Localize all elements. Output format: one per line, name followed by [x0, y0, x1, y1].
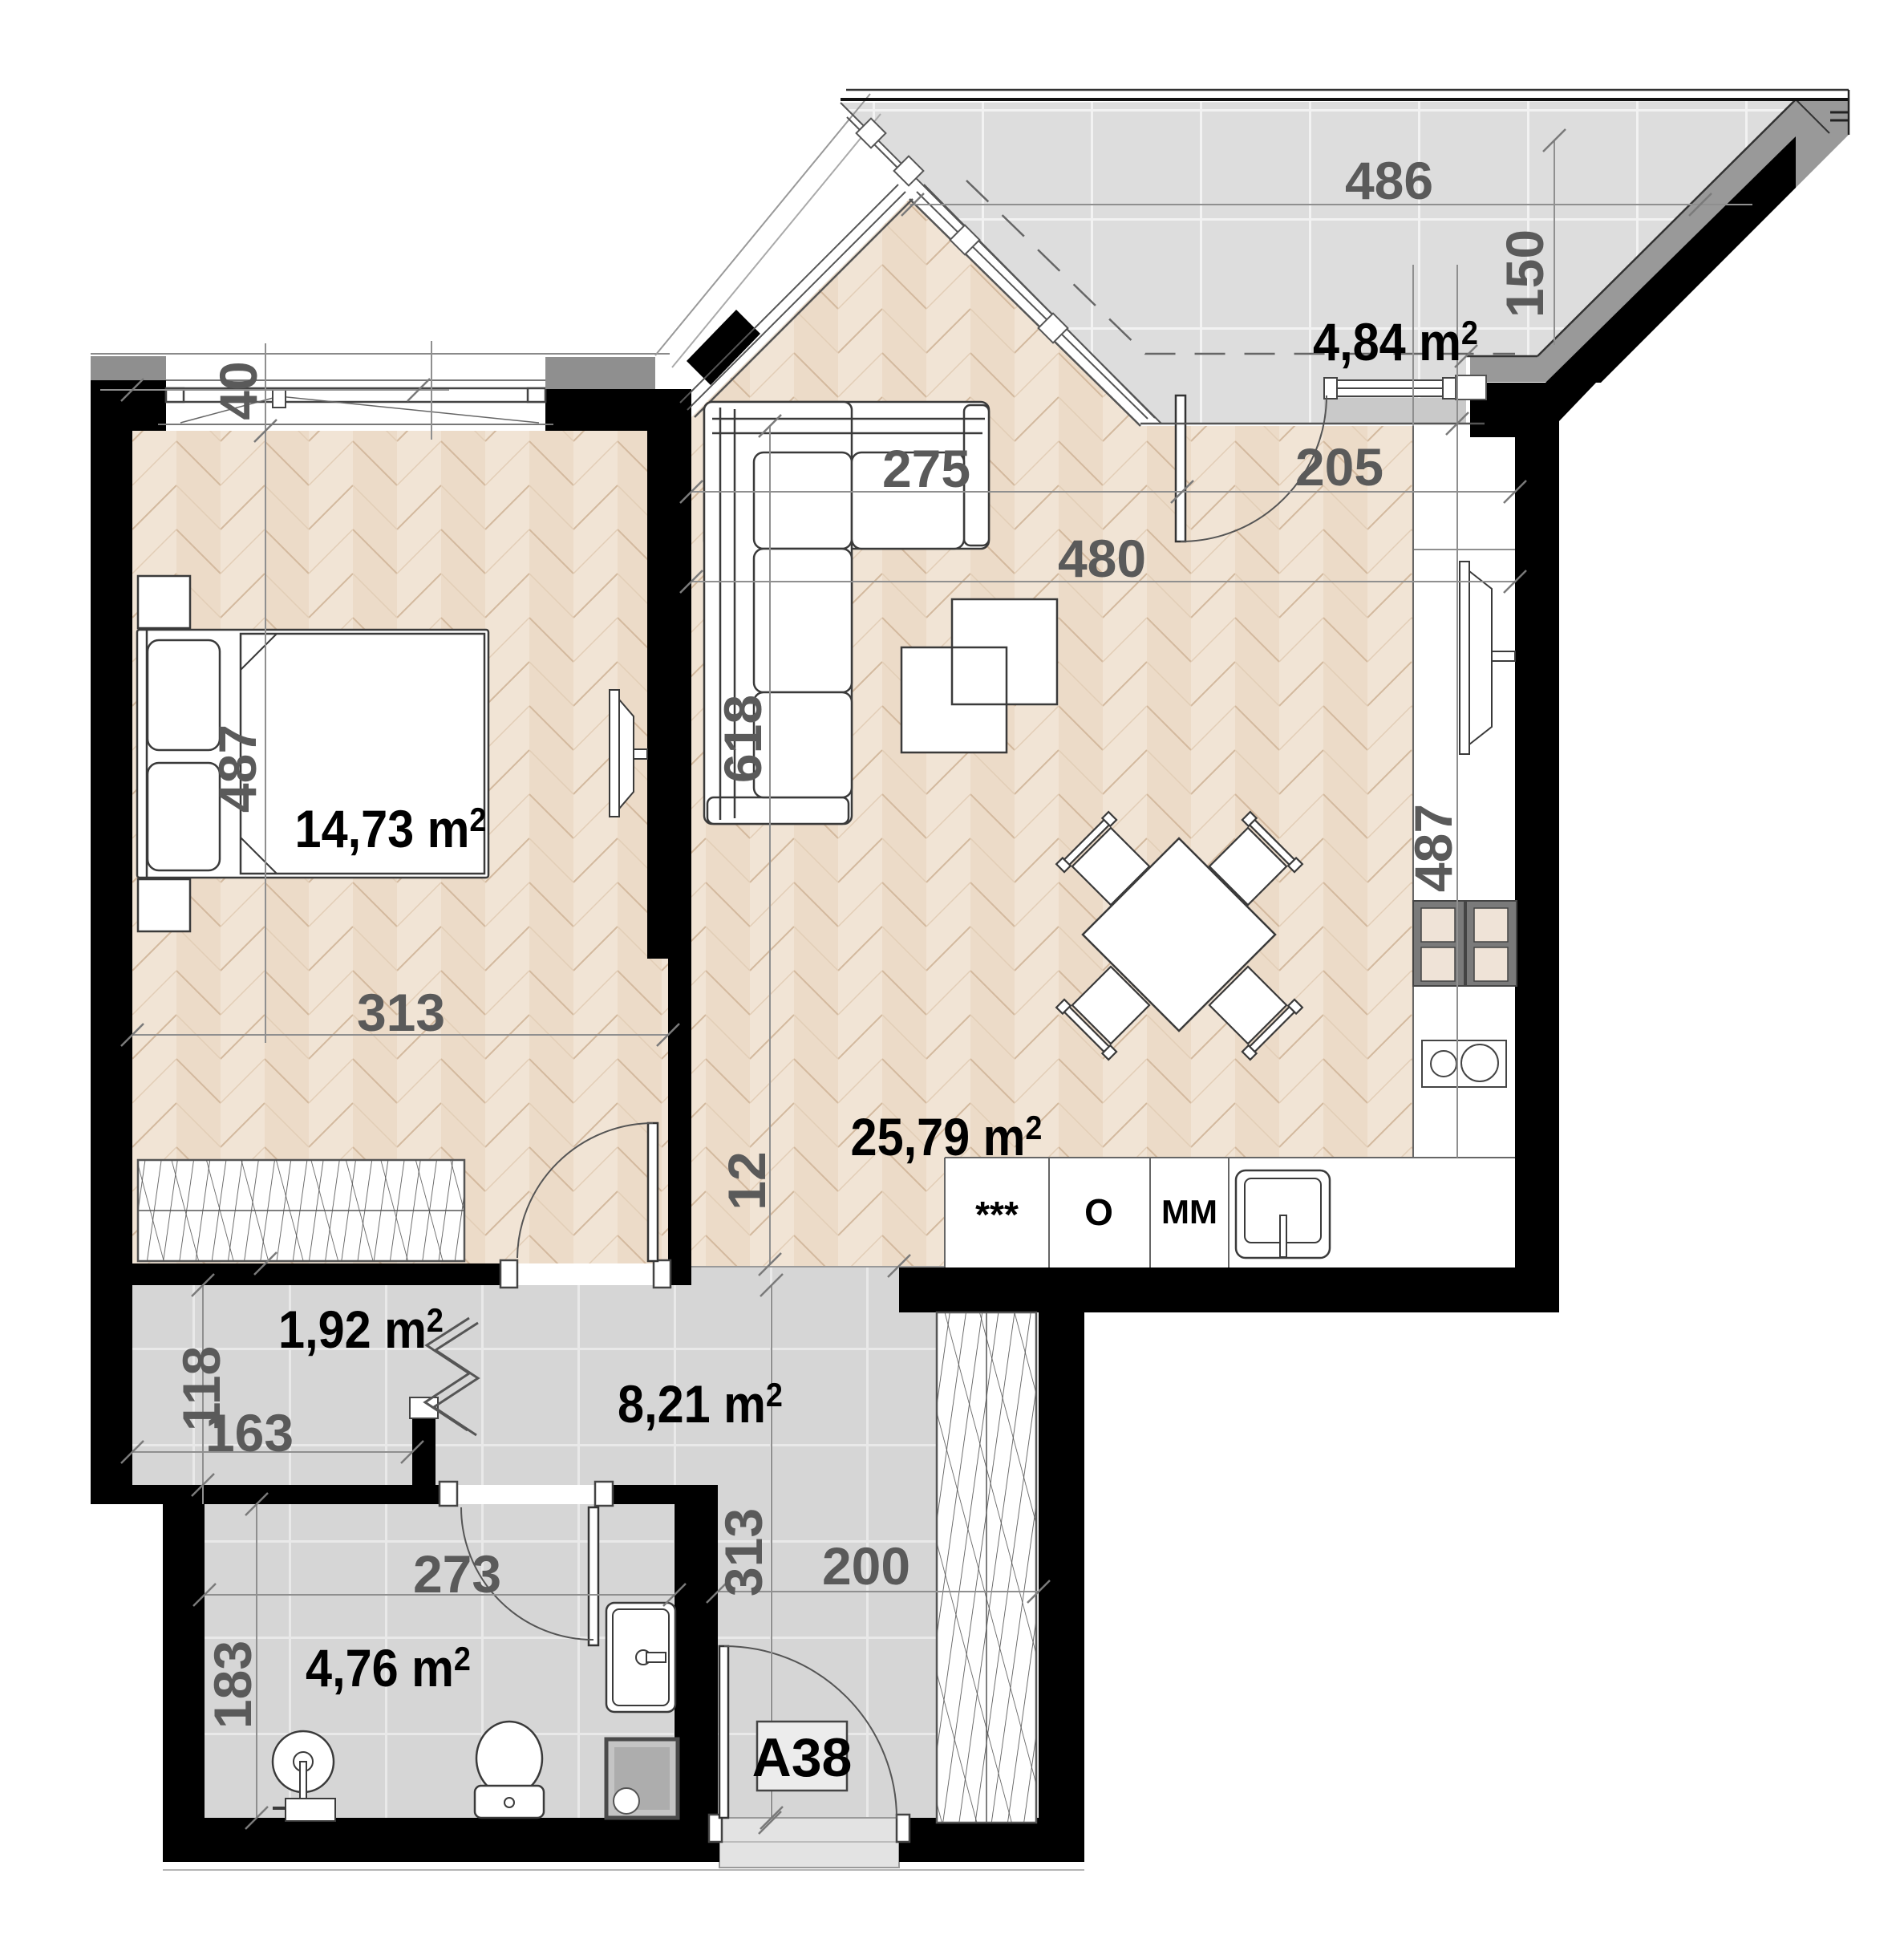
svg-text:***: *** — [975, 1194, 1019, 1235]
svg-text:273: 273 — [413, 1544, 501, 1604]
svg-text:183: 183 — [203, 1641, 262, 1729]
svg-text:8,21 m2: 8,21 m2 — [618, 1375, 783, 1434]
svg-text:1,92 m2: 1,92 m2 — [278, 1300, 444, 1360]
svg-text:150: 150 — [1495, 229, 1554, 318]
svg-text:25,79 m2: 25,79 m2 — [851, 1108, 1043, 1167]
svg-text:486: 486 — [1345, 151, 1433, 210]
svg-text:12: 12 — [717, 1151, 776, 1210]
svg-text:205: 205 — [1295, 437, 1383, 497]
svg-text:487: 487 — [1404, 804, 1463, 892]
svg-text:A38: A38 — [752, 1727, 853, 1788]
svg-text:275: 275 — [882, 439, 970, 498]
svg-text:163: 163 — [205, 1403, 294, 1462]
svg-text:4,84 m2: 4,84 m2 — [1313, 313, 1478, 372]
svg-text:618: 618 — [713, 695, 772, 783]
svg-text:487: 487 — [208, 724, 267, 813]
svg-text:480: 480 — [1058, 529, 1146, 588]
svg-text:40: 40 — [209, 361, 268, 420]
svg-text:O: O — [1084, 1191, 1113, 1233]
svg-text:MM: MM — [1161, 1193, 1217, 1231]
svg-text:313: 313 — [357, 983, 445, 1042]
svg-text:14,73 m2: 14,73 m2 — [295, 800, 487, 859]
svg-text:4,76 m2: 4,76 m2 — [306, 1639, 471, 1698]
svg-text:200: 200 — [822, 1536, 910, 1596]
svg-text:313: 313 — [714, 1508, 773, 1596]
